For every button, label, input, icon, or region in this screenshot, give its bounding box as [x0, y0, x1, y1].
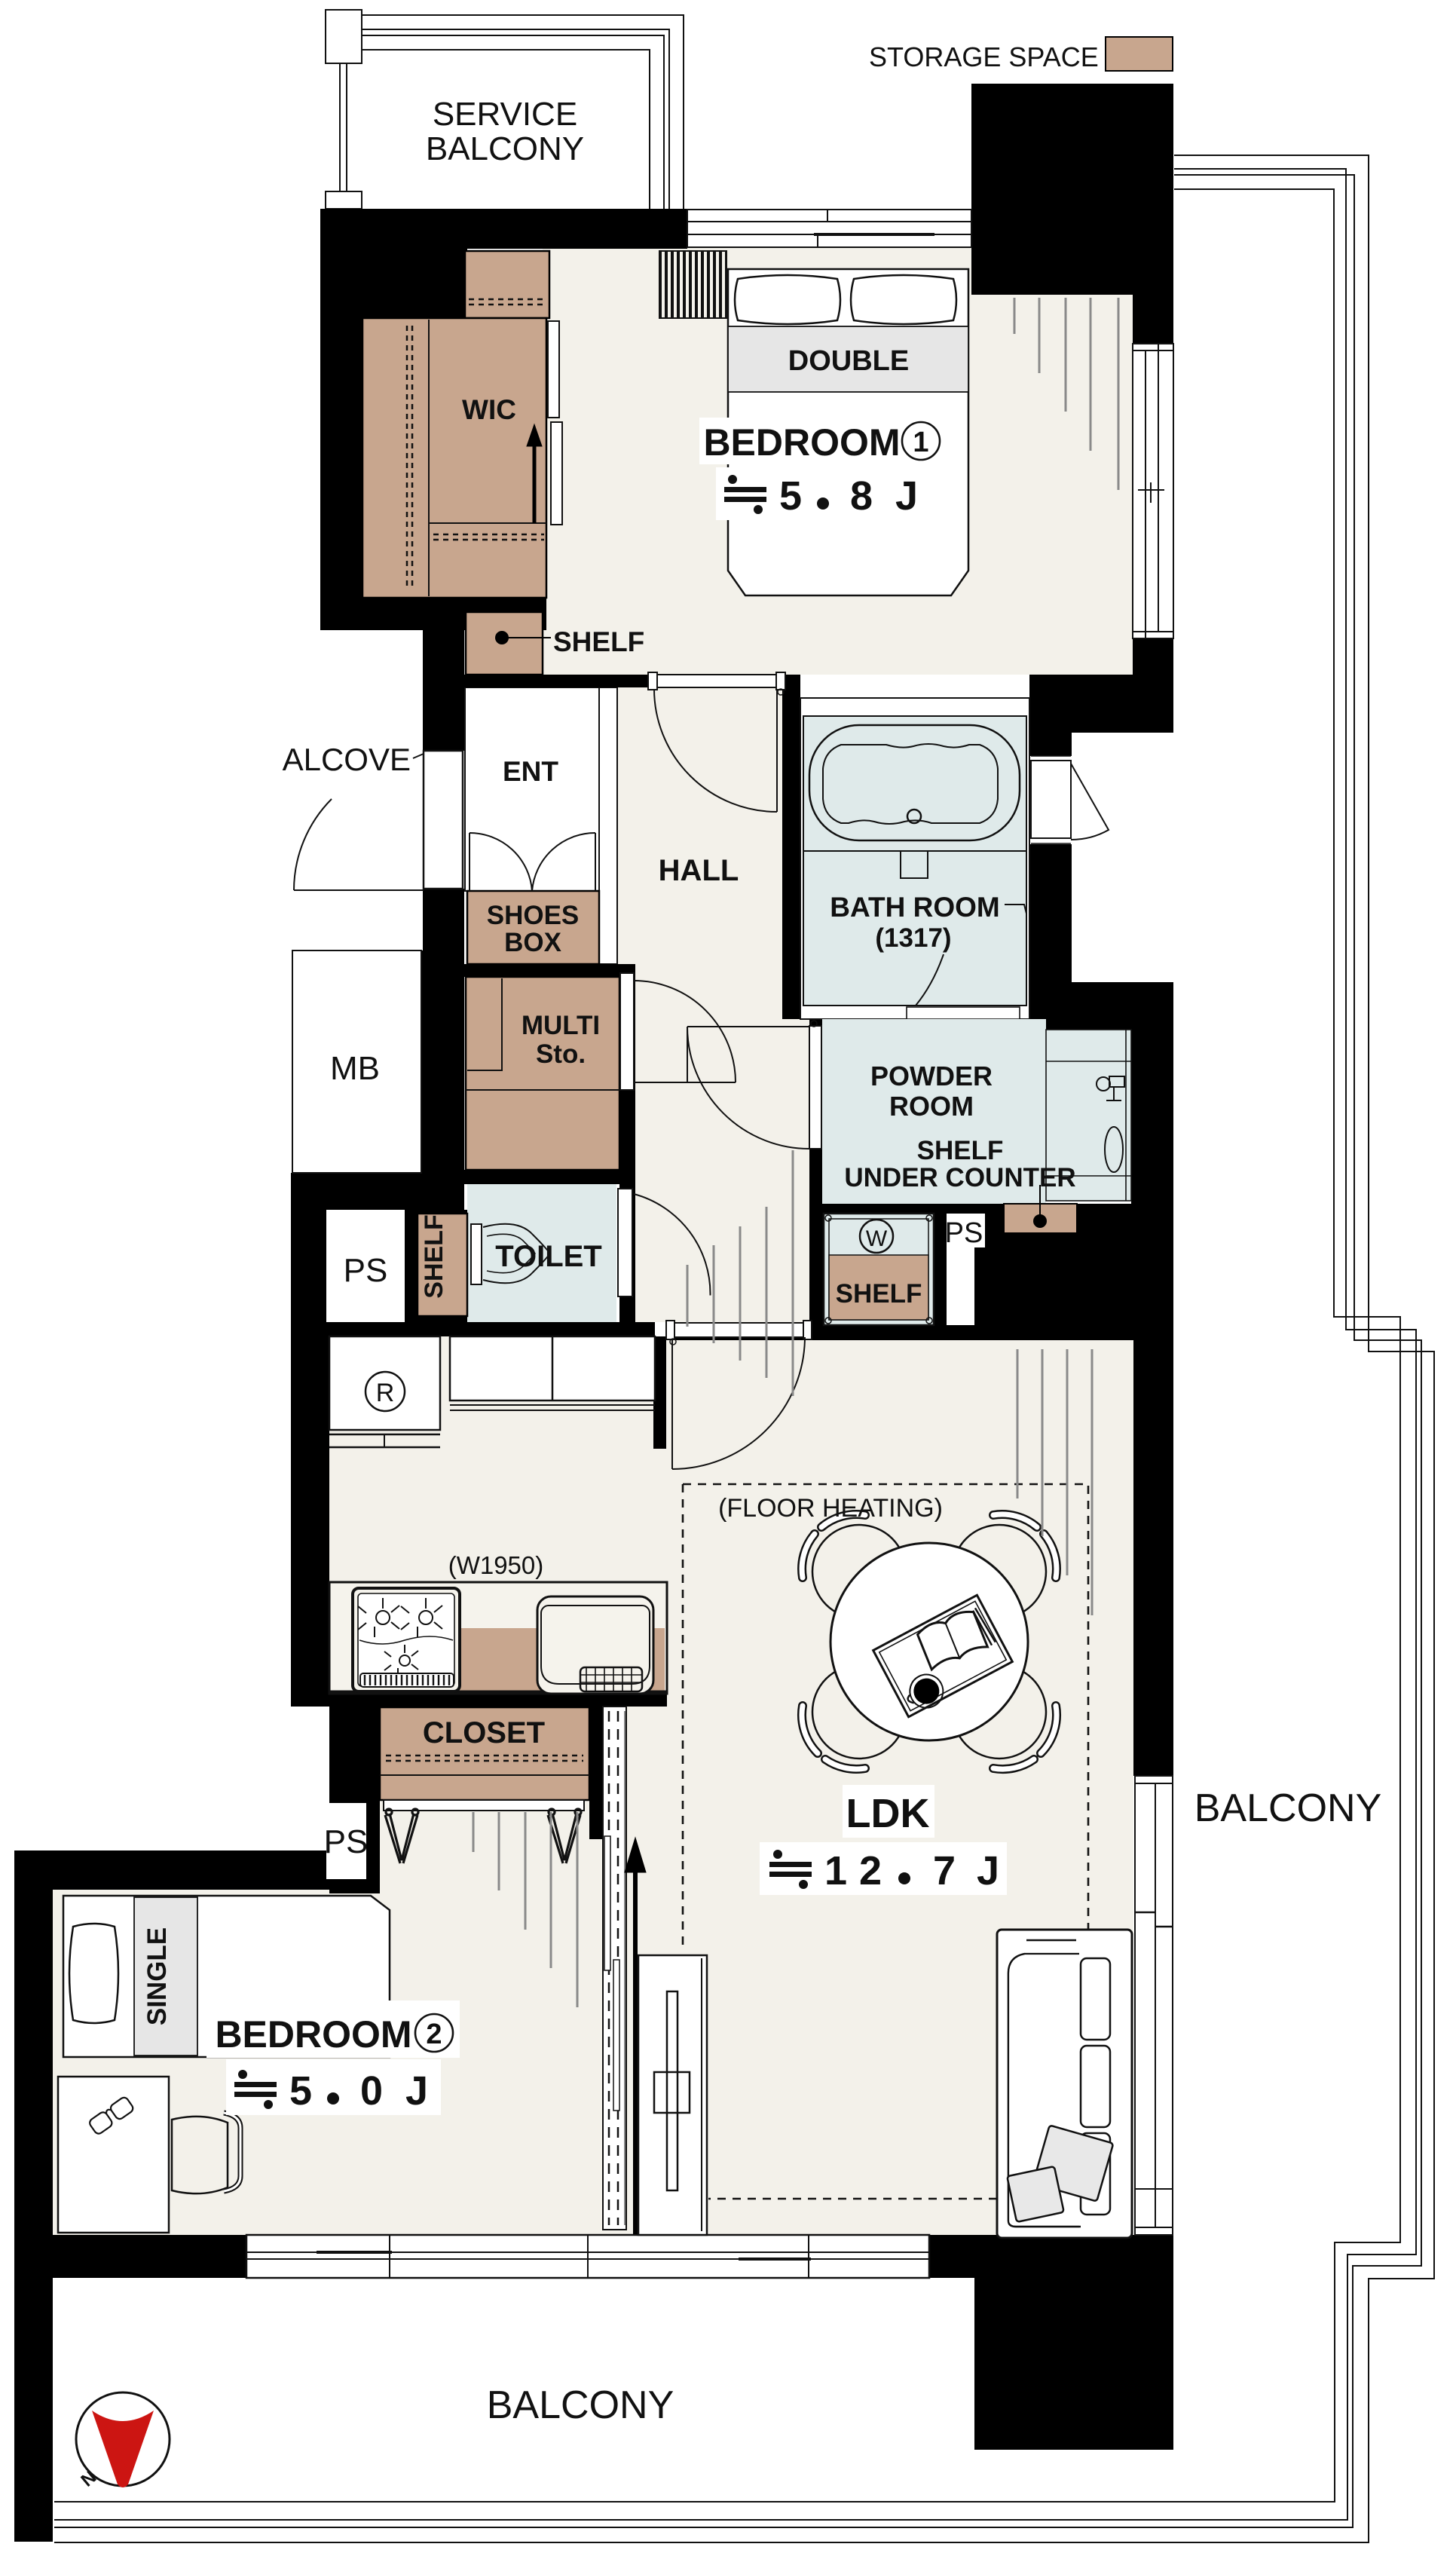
svg-text:2: 2 — [859, 1848, 882, 1893]
svg-text:MB: MB — [330, 1050, 380, 1087]
svg-text:1: 1 — [824, 1848, 847, 1893]
svg-text:(FLOOR HEATING): (FLOOR HEATING) — [718, 1494, 943, 1523]
svg-text:J: J — [895, 473, 918, 519]
svg-text:J: J — [405, 2068, 428, 2114]
svg-text:2: 2 — [426, 2019, 442, 2050]
svg-text:PS: PS — [344, 1252, 388, 1289]
svg-text:SINGLE: SINGLE — [142, 1927, 172, 2025]
svg-text:POWDER: POWDER — [870, 1061, 993, 1091]
svg-text:8: 8 — [850, 473, 873, 519]
svg-text:Sto.: Sto. — [536, 1039, 586, 1069]
svg-text:SHOES: SHOES — [487, 901, 580, 930]
svg-text:BATH ROOM: BATH ROOM — [830, 892, 999, 923]
svg-text:SERVICE: SERVICE — [433, 96, 577, 133]
svg-text:0: 0 — [360, 2068, 383, 2114]
svg-text:SHELF: SHELF — [553, 626, 644, 657]
svg-text:ENT: ENT — [503, 756, 558, 787]
svg-text:BALCONY: BALCONY — [1194, 1786, 1382, 1830]
svg-text:PS: PS — [324, 1823, 369, 1860]
svg-text:SHELF: SHELF — [836, 1279, 922, 1309]
svg-text:MULTI: MULTI — [522, 1011, 600, 1040]
svg-text:1: 1 — [913, 427, 928, 458]
svg-text:BALCONY: BALCONY — [487, 2383, 674, 2427]
svg-text:BEDROOM: BEDROOM — [215, 2013, 411, 2056]
svg-text:BOX: BOX — [504, 928, 562, 957]
svg-text:HALL: HALL — [659, 854, 739, 887]
svg-text:(W1950): (W1950) — [448, 1551, 544, 1579]
svg-text:DOUBLE: DOUBLE — [788, 345, 909, 377]
svg-text:ROOM: ROOM — [889, 1091, 974, 1122]
svg-text:WIC: WIC — [462, 394, 516, 425]
svg-text:5: 5 — [779, 473, 802, 519]
svg-text:7: 7 — [933, 1848, 956, 1893]
svg-text:UNDER COUNTER: UNDER COUNTER — [844, 1163, 1075, 1192]
svg-text:LDK: LDK — [846, 1791, 930, 1836]
svg-text:BALCONY: BALCONY — [426, 130, 584, 167]
svg-text:STORAGE SPACE: STORAGE SPACE — [869, 41, 1099, 72]
svg-text:BEDROOM: BEDROOM — [703, 421, 900, 464]
svg-text:SHELF: SHELF — [420, 1214, 448, 1298]
svg-text:5: 5 — [289, 2068, 312, 2114]
svg-text:TOILET: TOILET — [495, 1240, 601, 1273]
svg-text:J: J — [977, 1848, 999, 1893]
svg-text:CLOSET: CLOSET — [423, 1716, 545, 1749]
svg-text:SHELF: SHELF — [917, 1136, 1004, 1165]
svg-text:(1317): (1317) — [875, 923, 951, 953]
svg-text:ALCOVE: ALCOVE — [283, 742, 411, 777]
svg-text:PS: PS — [945, 1217, 983, 1249]
svg-text:W: W — [866, 1226, 888, 1251]
svg-text:R: R — [376, 1379, 395, 1407]
